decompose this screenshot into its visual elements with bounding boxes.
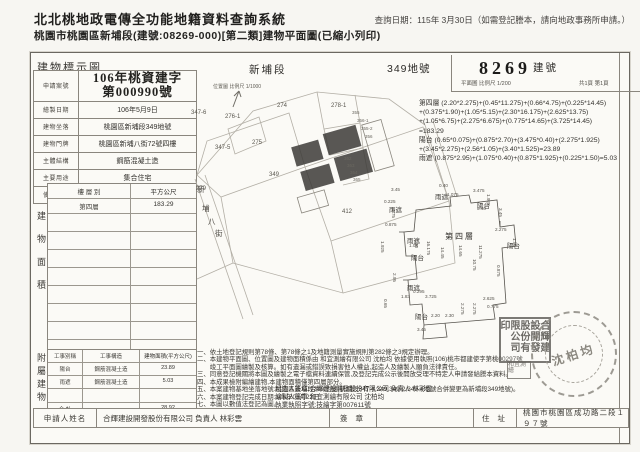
map-parcel-label: 356-1: [357, 118, 369, 123]
scanned-document: 建物標示圖 新埔段 349地號 8269 建號 平面圖 比例尺 1/200 共1…: [30, 52, 630, 444]
building-number: 8269: [479, 58, 531, 79]
plan-dimension-label: 3.475: [473, 188, 485, 193]
attached-kind: 陽台: [48, 363, 83, 375]
signature-block: 起造人簽章:合輝建設開發股份有限公司 負責人 林彩雲 繪製人簽章:和宜測繪有限公…: [275, 386, 505, 411]
north-arrow-icon: [233, 91, 241, 107]
table-row: 雨遮 鋼筋混凝土造 5.03: [48, 376, 196, 389]
attached-structure: 鋼筋混凝土造: [83, 363, 140, 375]
floor-area-value: 183.29: [131, 199, 196, 213]
surveyor-round-seal-icon: 沈柏均: [531, 311, 617, 397]
table-row: 建物坐落 桃園區新埔段349地號: [34, 119, 196, 136]
plan-dimension-label: 1.925: [486, 194, 491, 206]
plan-dimension-label: 2.20: [431, 313, 440, 318]
application-number: 106年桃資建字 第000990號: [79, 71, 196, 101]
field-label: 繪製日期: [34, 102, 79, 118]
address-label: 住 址: [473, 409, 517, 427]
table-row: [48, 304, 196, 322]
plan-dimension-label: 2.30: [445, 313, 454, 318]
attached-structure: 鋼筋混凝土造: [83, 376, 140, 388]
map-parcel-label: 349: [269, 172, 279, 178]
plan-dimension-label: 11.275: [478, 245, 483, 259]
table-row: [48, 250, 196, 268]
plan-dimension-label: 3.45: [391, 187, 400, 192]
signature-stamp-area: [377, 409, 473, 427]
calc-line: +(0.375*1.90)+(1.05*5.15)+(2.30*16.175)+…: [419, 108, 640, 117]
attached-area: 5.03: [140, 376, 196, 388]
map-parcel-label: 274: [277, 103, 287, 109]
calc-line: 第四層 (2.20*2.275)+(0.45*11.275)+(0.66*4.7…: [419, 99, 640, 108]
table-row: 申請案號 106年桃資建字 第000990號: [34, 71, 196, 102]
table-header-row: 工事別稱 工事構造 建物面積(平方公尺): [48, 350, 196, 363]
map-parcel-label: 412: [342, 209, 352, 215]
attached-kind: 雨遮: [48, 376, 83, 388]
plan-dimension-label: 14.45: [440, 247, 445, 259]
plan-room-label: 陽台: [415, 311, 428, 321]
table-header-row: 樓 層 別 平方公尺: [48, 184, 196, 199]
column-header: 工事別稱: [48, 350, 83, 362]
field-label: 主體結構: [34, 153, 79, 169]
application-number-line1: 106年桃資建字: [93, 72, 182, 86]
plan-dimension-label: 14.65: [458, 245, 463, 257]
field-label: 建物坐落: [34, 119, 79, 135]
plan-dimension-label: 0.875: [496, 265, 501, 277]
map-parcel-label: 365: [353, 177, 361, 182]
plan-dimension-label: 2.30: [414, 239, 419, 248]
table-row: [48, 286, 196, 304]
table-row: [48, 214, 196, 232]
column-header: 樓 層 別: [48, 184, 131, 198]
calc-line: 陽台 (0.65*0.075)+(0.875*2.70)+(3.475*0.40…: [419, 136, 640, 145]
plan-dimension-label: 2.275: [495, 227, 507, 232]
calc-line: +(3.45*2.275)+(2.56*1.05)+(3.40*1.525)=2…: [419, 145, 640, 154]
plan-dimension-label: 4.75: [391, 209, 396, 218]
column-header: 建物面積(平方公尺): [140, 350, 196, 362]
table-row: 建物門牌 桃園區新埔八街72號四樓: [34, 136, 196, 153]
table-row: 陽台 鋼筋混凝土造 23.89: [48, 363, 196, 376]
plan-room-label: 陽台: [411, 252, 424, 262]
plan-dimension-label: 2.95: [392, 273, 397, 282]
plan-dimension-label: 2.275: [460, 303, 465, 315]
map-parcel-label: 埔: [202, 203, 210, 214]
field-value: 106年5月9日: [79, 102, 196, 118]
map-parcel-label: 355: [352, 110, 360, 115]
plan-dimension-label: 3.40: [477, 206, 486, 211]
table-row: 主體結構 鋼筋混凝土造: [34, 153, 196, 170]
land-section-name: 新埔段: [249, 62, 287, 77]
floor-name: 第四層: [48, 199, 131, 213]
query-date: 查詢日期：115年 3月30日（如需登記謄本，請向地政事務所申請。）: [375, 14, 630, 26]
field-value: 桃園區新埔段349地號: [79, 119, 196, 135]
map-parcel-label: 276-1: [225, 114, 240, 120]
calc-line: +(1.05*6.75)+(2.275*6.675)+(0.775*14.65)…: [419, 117, 640, 126]
plan-dimension-label: 2.275: [472, 303, 477, 315]
map-parcel-label: 275: [252, 140, 262, 146]
table-row: [48, 322, 196, 340]
map-parcel-label: 新: [197, 184, 205, 195]
secondary-seal-stamp-icon: 和宜測繪: [507, 361, 531, 379]
system-title: 北北桃地政電傳全功能地籍資料查詢系統: [34, 9, 286, 28]
builder-signature-line: 起造人簽章:合輝建設開發股份有限公司 負責人 林彩雲: [275, 386, 505, 394]
map-parcel-label: 363: [347, 163, 355, 168]
field-label: 申請案號: [34, 71, 79, 101]
table-row: [48, 232, 196, 250]
table-row: [48, 389, 196, 403]
plan-dimension-label: 10.75: [472, 259, 477, 271]
plan-dimension-label: 3.725: [425, 294, 437, 299]
attached-building-table: 工事別稱 工事構造 建物面積(平方公尺) 陽台 鋼筋混凝土造 23.89 雨遮 …: [47, 349, 197, 416]
applicant-name-value: 合輝建設開發股份有限公司 負責人 林彩雲: [97, 409, 329, 427]
table-row: [48, 268, 196, 286]
plan-dimension-label: 1.075: [447, 192, 459, 197]
table-row: 第四層 183.29: [48, 199, 196, 214]
plan-dimension-label: 1.83: [401, 294, 410, 299]
floor-area-table: 樓 層 別 平方公尺 第四層 183.29 合 計 183.29: [47, 183, 197, 373]
map-parcel-label: 362: [344, 156, 352, 161]
column-header: 平方公尺: [131, 184, 196, 198]
attached-area: 23.89: [140, 363, 196, 375]
address-value: 桃園市桃園區成功路二段１９７號: [517, 409, 628, 427]
page-info: 共1頁 第1頁: [579, 79, 609, 87]
plan-room-label: 第四層: [445, 231, 475, 242]
table-row: 繪製日期 106年5月9日: [34, 102, 196, 119]
plan-dimension-label: 3.45: [498, 208, 503, 217]
plan-dimension-label: 16.175: [426, 241, 431, 255]
calc-line: =183.29: [419, 127, 640, 136]
plan-dimension-label: 0.40: [439, 183, 448, 188]
application-number-line2: 第000990號: [102, 86, 173, 100]
lot-number: 349地號: [387, 61, 431, 76]
field-value: 桃園區新埔八街72號四樓: [79, 136, 196, 152]
plan-dimension-label: 0.65: [383, 299, 388, 308]
plan-dimension-label: 1.925: [380, 241, 385, 253]
area-calculation-block: 第四層 (2.20*2.275)+(0.45*11.275)+(0.66*4.7…: [419, 99, 640, 163]
map-parcel-label: 街: [215, 228, 223, 239]
plan-dimension-label: 0.225: [384, 199, 396, 204]
applicant-name-label: 申請人姓名: [34, 409, 97, 427]
field-value: 鋼筋混凝土造: [79, 153, 196, 169]
field-label: 建物門牌: [34, 136, 79, 152]
plan-dimension-label: 0.875: [385, 222, 397, 227]
map-parcel-label: 347-5: [215, 145, 230, 151]
map-parcel-label: 278-1: [331, 103, 346, 109]
building-number-label: 建號: [533, 60, 558, 75]
plan-dimension-label: 3.45: [417, 327, 426, 332]
calc-line: 雨遮 (0.875*2.95)+(1.075*0.40)+(0.875*1.92…: [419, 154, 640, 163]
plan-dimension-label: 2.625: [483, 296, 495, 301]
map-parcel-label: 356: [365, 134, 373, 139]
map-parcel-label: 355-2: [361, 126, 373, 131]
surveyor-seal-text: 沈柏均: [550, 339, 598, 369]
map-parcel-label: 347-6: [191, 110, 206, 116]
column-header: 工事構造: [83, 350, 140, 362]
signature-label: 簽 章: [329, 409, 377, 427]
document-title: 桃園市桃園區新埔段(建號:08269-000)[第二類]建物平面圖(已縮小列印): [34, 28, 381, 43]
applicant-row: 申請人姓名 合輝建設開發股份有限公司 負責人 林彩雲 簽 章 住 址 桃園市桃園…: [33, 408, 629, 428]
plan-dimension-label: 0.775: [487, 304, 499, 309]
map-parcel-label: 八: [208, 216, 216, 227]
plan-dimension-label: 0.295: [413, 289, 425, 294]
plan-dimension-label: 1.50: [512, 238, 517, 247]
map-parcel-label: 364: [350, 170, 358, 175]
